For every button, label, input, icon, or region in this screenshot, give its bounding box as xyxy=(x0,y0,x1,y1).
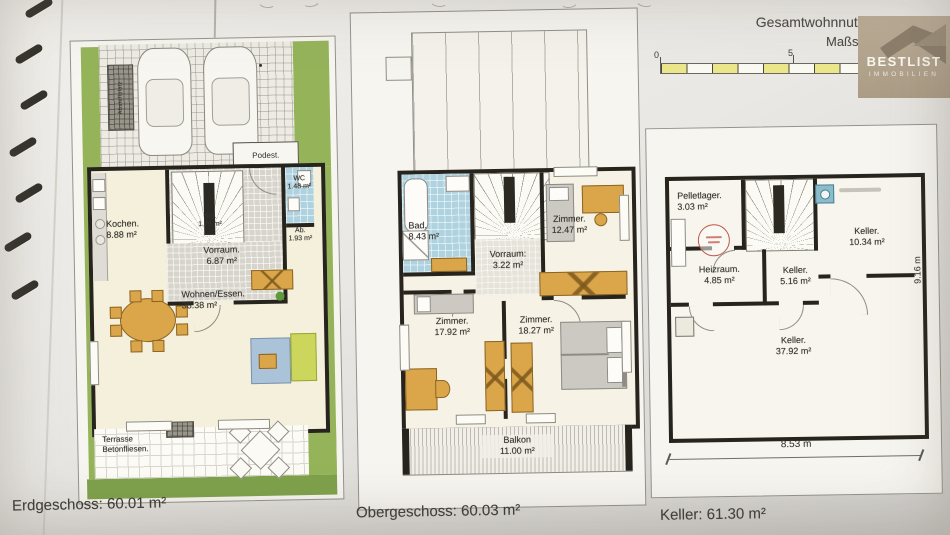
room-label-wc: WC 1.48 m² xyxy=(285,175,313,192)
room-area: 37.92 m² xyxy=(760,346,828,358)
room-label-balkon: Balkon 11.00 m² xyxy=(482,434,552,458)
roof-outline xyxy=(411,29,589,174)
room-area: 6.87 m² xyxy=(189,255,255,268)
shelf xyxy=(671,219,687,267)
pillow xyxy=(606,327,622,353)
room-area: 10.34 m² xyxy=(834,237,900,249)
chair xyxy=(129,290,141,302)
room-area: 17.92 m² xyxy=(420,327,484,339)
building-erdgeschoss: Kochen. 8.88 m² Stg. 1.76 m² Vorraum. 6.… xyxy=(87,163,330,438)
scale-label-partial: Maßs xyxy=(826,34,859,49)
tiny-note-blur xyxy=(839,188,881,193)
window xyxy=(619,195,630,241)
caption-erdgeschoss: Erdgeschoss: 60.01 m² xyxy=(12,494,167,514)
building-keller: Pelletlager. 3.03 m² Keller. 10.34 m² He… xyxy=(665,173,929,443)
caption-obergeschoss: Obergeschoss: 60.03 m² xyxy=(356,502,521,522)
room-area: 1.76 m² xyxy=(184,221,236,230)
utility-icon xyxy=(815,184,834,203)
utility-icon-dot xyxy=(820,189,830,199)
room-area: 1.93 m² xyxy=(284,235,316,244)
balcony-door xyxy=(456,414,486,425)
sofa-corner xyxy=(290,333,317,381)
pillow xyxy=(417,296,431,312)
scale-zero: 0 xyxy=(654,50,659,60)
pen-mark xyxy=(429,0,448,8)
wall xyxy=(403,271,475,276)
spiral-coil xyxy=(14,43,44,65)
wall xyxy=(734,246,746,250)
dimension-height: 9.16 m xyxy=(912,245,923,295)
dimension-width: 8.53 m xyxy=(751,438,841,450)
page-edge xyxy=(43,0,64,535)
sump xyxy=(675,317,694,337)
pen-mark xyxy=(559,0,578,9)
room-area: 12.47 m² xyxy=(536,224,602,236)
stamp-text-blur xyxy=(706,236,722,238)
window xyxy=(553,166,597,177)
room-area: 11.00 m² xyxy=(482,445,552,457)
spiral-coil xyxy=(19,89,49,111)
chair xyxy=(110,307,122,319)
car-cabin xyxy=(145,78,184,127)
room-label-keller-1: Keller. 10.34 m² xyxy=(834,225,900,249)
stamp-text-blur xyxy=(708,241,720,243)
window xyxy=(218,419,270,430)
podest-label: Podest. xyxy=(252,150,279,160)
stair-newel xyxy=(773,185,785,233)
desk-chair xyxy=(435,380,450,398)
room-label-keller-3: Keller. 37.92 m² xyxy=(759,334,827,358)
window xyxy=(399,325,410,371)
chair xyxy=(130,340,142,352)
window xyxy=(621,321,632,373)
room-label-stiege: Stg. 1.76 m² xyxy=(184,212,236,230)
terrace-label: Terrasse Betonfliesen. xyxy=(102,434,172,455)
kitchen-appliance xyxy=(93,197,106,210)
terrace: Terrasse Betonfliesen. xyxy=(94,425,309,479)
plan-keller: Pelletlager. 3.03 m² Keller. 10.34 m² He… xyxy=(645,124,943,499)
pen-mark xyxy=(301,0,321,8)
room-area: 18.27 m² xyxy=(504,325,568,337)
pen-mark xyxy=(257,0,276,9)
chair xyxy=(152,340,164,352)
logo-subtitle: IMMOBILIEN xyxy=(858,71,950,78)
plan-erdgeschoss: Abstellplatz Podest. xyxy=(70,35,345,504)
chair xyxy=(110,325,122,337)
storage-box-label: Abstellplatz xyxy=(117,81,124,114)
balcony-door xyxy=(526,413,556,424)
spiral-coil xyxy=(3,231,33,253)
storage-box: Abstellplatz xyxy=(107,64,134,130)
floorplan-page: Abstellplatz Podest. xyxy=(0,0,950,535)
room-label-bad: Bad. 8.43 m² xyxy=(408,220,456,243)
room-area: 8.88 m² xyxy=(106,229,172,242)
wall xyxy=(803,301,819,305)
room-name: Bad. xyxy=(408,220,456,232)
wardrobe xyxy=(510,342,533,412)
washbasin xyxy=(446,175,470,191)
room-label-zimmer-3: Zimmer. 18.27 m² xyxy=(504,314,568,338)
spiral-coil xyxy=(10,279,40,301)
door-arc xyxy=(779,305,804,330)
room-area: 5.16 m² xyxy=(764,276,826,288)
desk xyxy=(405,368,438,411)
room-area: 3.03 m² xyxy=(677,201,749,213)
room-label-vorraum: Vorraum: 3.22 m² xyxy=(475,248,541,272)
room-area: 1.48 m² xyxy=(285,183,313,192)
building-obergeschoss: Bad. 8.43 m² Vorraum: 3.22 m² Zimmer. 12… xyxy=(397,167,640,433)
chair xyxy=(176,323,188,335)
kitchen-appliance xyxy=(92,179,105,192)
room-label-keller-2: Keller. 5.16 m² xyxy=(764,264,826,287)
caption-keller: Keller: 61.30 m² xyxy=(660,505,766,524)
spiral-coil xyxy=(24,0,54,19)
room-label-wohnen-essen: Wohnen/Essen. 38.38 m² xyxy=(181,288,281,312)
roof-dormer xyxy=(385,56,411,80)
room-area: 38.38 m² xyxy=(182,299,282,312)
wall xyxy=(582,295,626,300)
plan-obergeschoss: Bad. 8.43 m² Vorraum: 3.22 m² Zimmer. 12… xyxy=(350,8,647,511)
wall xyxy=(866,273,914,278)
dimension-line xyxy=(669,455,921,460)
spiral-coil xyxy=(14,182,44,204)
wall xyxy=(671,303,689,307)
room-label-pelletlager: Pelletlager. 3.03 m² xyxy=(677,190,749,214)
balcony: Balkon 11.00 m² xyxy=(402,425,633,476)
car-icon xyxy=(137,47,193,156)
room-label-zimmer-2: Zimmer. 17.92 m² xyxy=(420,315,484,339)
wall xyxy=(542,296,554,300)
wardrobe xyxy=(484,341,505,411)
room-label-heizraum: Heizraum. 4.85 m² xyxy=(684,264,754,288)
wall xyxy=(402,429,410,475)
coffee-table xyxy=(259,354,277,369)
survey-dot xyxy=(259,64,262,67)
wall xyxy=(713,301,779,306)
room-area: 3.22 m² xyxy=(475,259,541,271)
dimension-tick xyxy=(918,449,924,461)
chair xyxy=(151,290,163,302)
room-area: 8.43 m² xyxy=(409,231,457,243)
stair-newel xyxy=(504,177,516,223)
pillow xyxy=(549,187,569,201)
room-label-abstellraum: Ab. 1.93 m² xyxy=(284,227,316,244)
room-label-kochen: Kochen. 8.88 m² xyxy=(106,218,172,242)
room-label-zimmer-1: Zimmer. 12.47 m² xyxy=(536,213,602,237)
terrace-label-line2: Betonfliesen. xyxy=(102,444,172,455)
car-icon xyxy=(203,46,259,155)
scale-bar xyxy=(660,63,866,74)
logo-title: BESTLIST xyxy=(858,54,950,69)
bath-bench xyxy=(431,258,467,273)
desk xyxy=(582,185,624,214)
pen-mark xyxy=(635,0,655,8)
room-label-vorraum: Vorraum. 6.87 m² xyxy=(189,244,255,268)
room-area: 4.85 m² xyxy=(684,275,754,287)
wardrobe xyxy=(539,271,627,297)
window xyxy=(89,341,99,385)
wall xyxy=(625,425,633,471)
door-arc xyxy=(830,278,868,316)
washbasin xyxy=(288,197,300,211)
spiral-coil xyxy=(8,136,38,158)
pillow xyxy=(607,357,623,383)
window xyxy=(126,421,172,432)
bestlist-logo: BESTLIST IMMOBILIEN xyxy=(858,16,950,98)
dining-table xyxy=(120,298,177,343)
car-cabin xyxy=(211,77,250,126)
